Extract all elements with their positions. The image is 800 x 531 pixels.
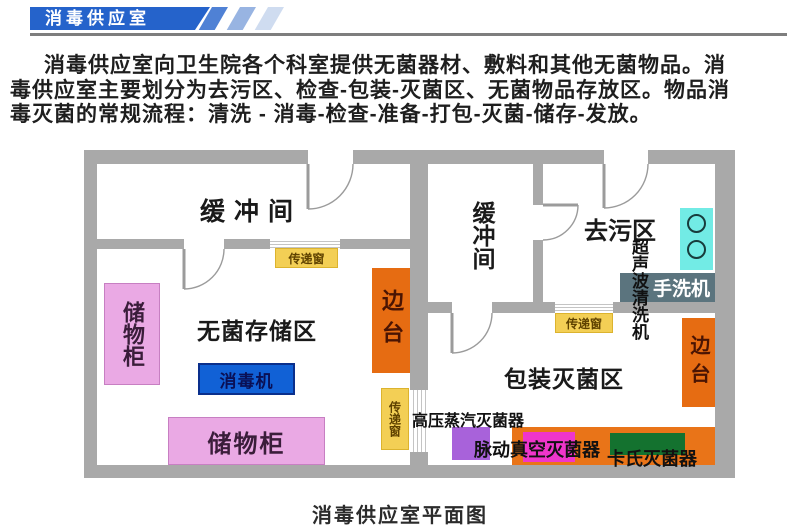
room-label-sterile-storage: 无菌存储区: [197, 312, 317, 346]
label-pulse-vacuum-sterilizer: 脉动真空灭菌器: [474, 436, 600, 462]
room-label-buffer-left: 缓冲间: [200, 192, 302, 228]
room-label-buffer-middle: 缓冲间: [465, 201, 499, 270]
disinfector-machine: 消毒机: [198, 363, 295, 395]
page: { "banner": { "title": "消毒供应室" }, "intro…: [0, 0, 800, 531]
storage-cabinet-left: 储物柜: [104, 283, 160, 385]
intro-line-1: 消毒供应室向卫生院各个科室提供无菌器材、敷料和其他无菌物品。消: [10, 54, 792, 79]
room-label-packing-sterilization: 包装灭菌区: [504, 360, 624, 394]
plan-caption: 消毒供应室平面图: [0, 499, 800, 528]
sink-basin-icon: [687, 214, 706, 233]
banner-stripe-icon: [255, 7, 284, 30]
label-ultrasonic-cleaner: 超声波清洗机: [627, 238, 649, 340]
sink-basin-icon: [687, 240, 706, 259]
label-autoclave: 高压蒸汽灭菌器: [412, 407, 524, 431]
label-cassette-sterilizer: 卡氏灭菌器: [607, 445, 697, 471]
intro-paragraph: 消毒供应室向卫生院各个科室提供无菌器材、敷料和其他无菌物品。消 毒供应室主要划分…: [10, 54, 792, 128]
floor-plan: 储物柜 消毒机 储物柜 边台 传递窗 传递窗 传递窗 手洗机 边台 缓冲间 缓冲…: [84, 150, 735, 478]
banner-stripe-icon: [227, 7, 256, 30]
pass-window-middle: 传递窗: [381, 388, 409, 450]
header-divider: [30, 33, 787, 36]
page-title-banner: 消毒供应室: [30, 7, 210, 30]
intro-line-3: 毒灭菌的常规流程：清洗 - 消毒-检查-准备-打包-灭菌-储存-发放。: [10, 103, 792, 128]
pass-window-top: 传递窗: [275, 248, 338, 268]
pass-window-right: 传递窗: [555, 313, 613, 333]
storage-cabinet-bottom: 储物柜: [168, 417, 325, 465]
side-table-left: 边台: [372, 268, 410, 373]
side-table-right: 边台: [682, 318, 715, 407]
intro-line-2: 毒供应室主要划分为去污区、检查-包装-灭菌区、无菌物品存放区。物品消: [10, 79, 792, 104]
washing-sink: [680, 208, 713, 270]
